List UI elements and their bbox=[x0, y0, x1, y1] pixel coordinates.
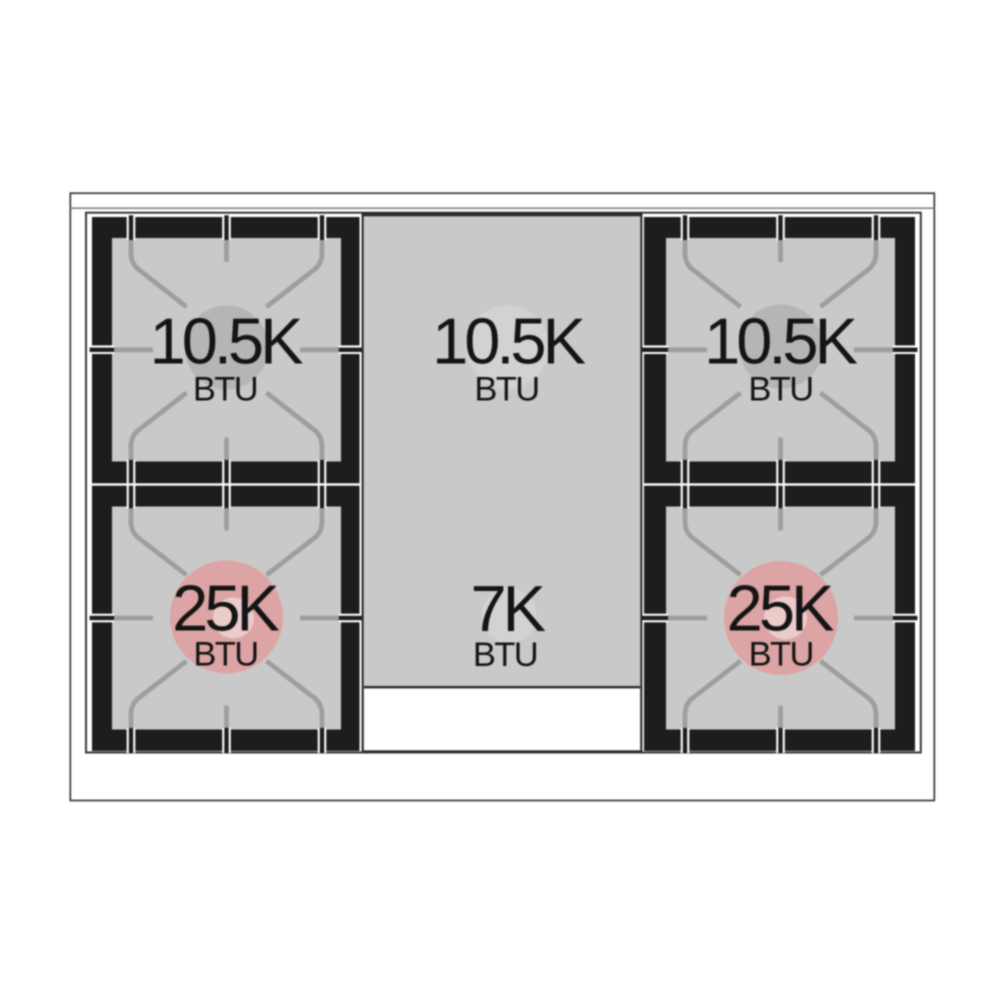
svg-text:25K: 25K bbox=[172, 571, 279, 644]
svg-text:BTU: BTU bbox=[193, 636, 257, 674]
svg-text:BTU: BTU bbox=[473, 636, 537, 674]
svg-text:7K: 7K bbox=[470, 572, 545, 645]
svg-text:BTU: BTU bbox=[193, 371, 257, 409]
svg-text:BTU: BTU bbox=[749, 636, 813, 674]
svg-text:BTU: BTU bbox=[748, 371, 812, 409]
svg-text:BTU: BTU bbox=[474, 371, 538, 409]
svg-text:25K: 25K bbox=[727, 571, 834, 644]
svg-text:10.5K: 10.5K bbox=[432, 304, 586, 377]
svg-text:10.5K: 10.5K bbox=[704, 304, 858, 377]
svg-text:10.5K: 10.5K bbox=[150, 304, 304, 377]
